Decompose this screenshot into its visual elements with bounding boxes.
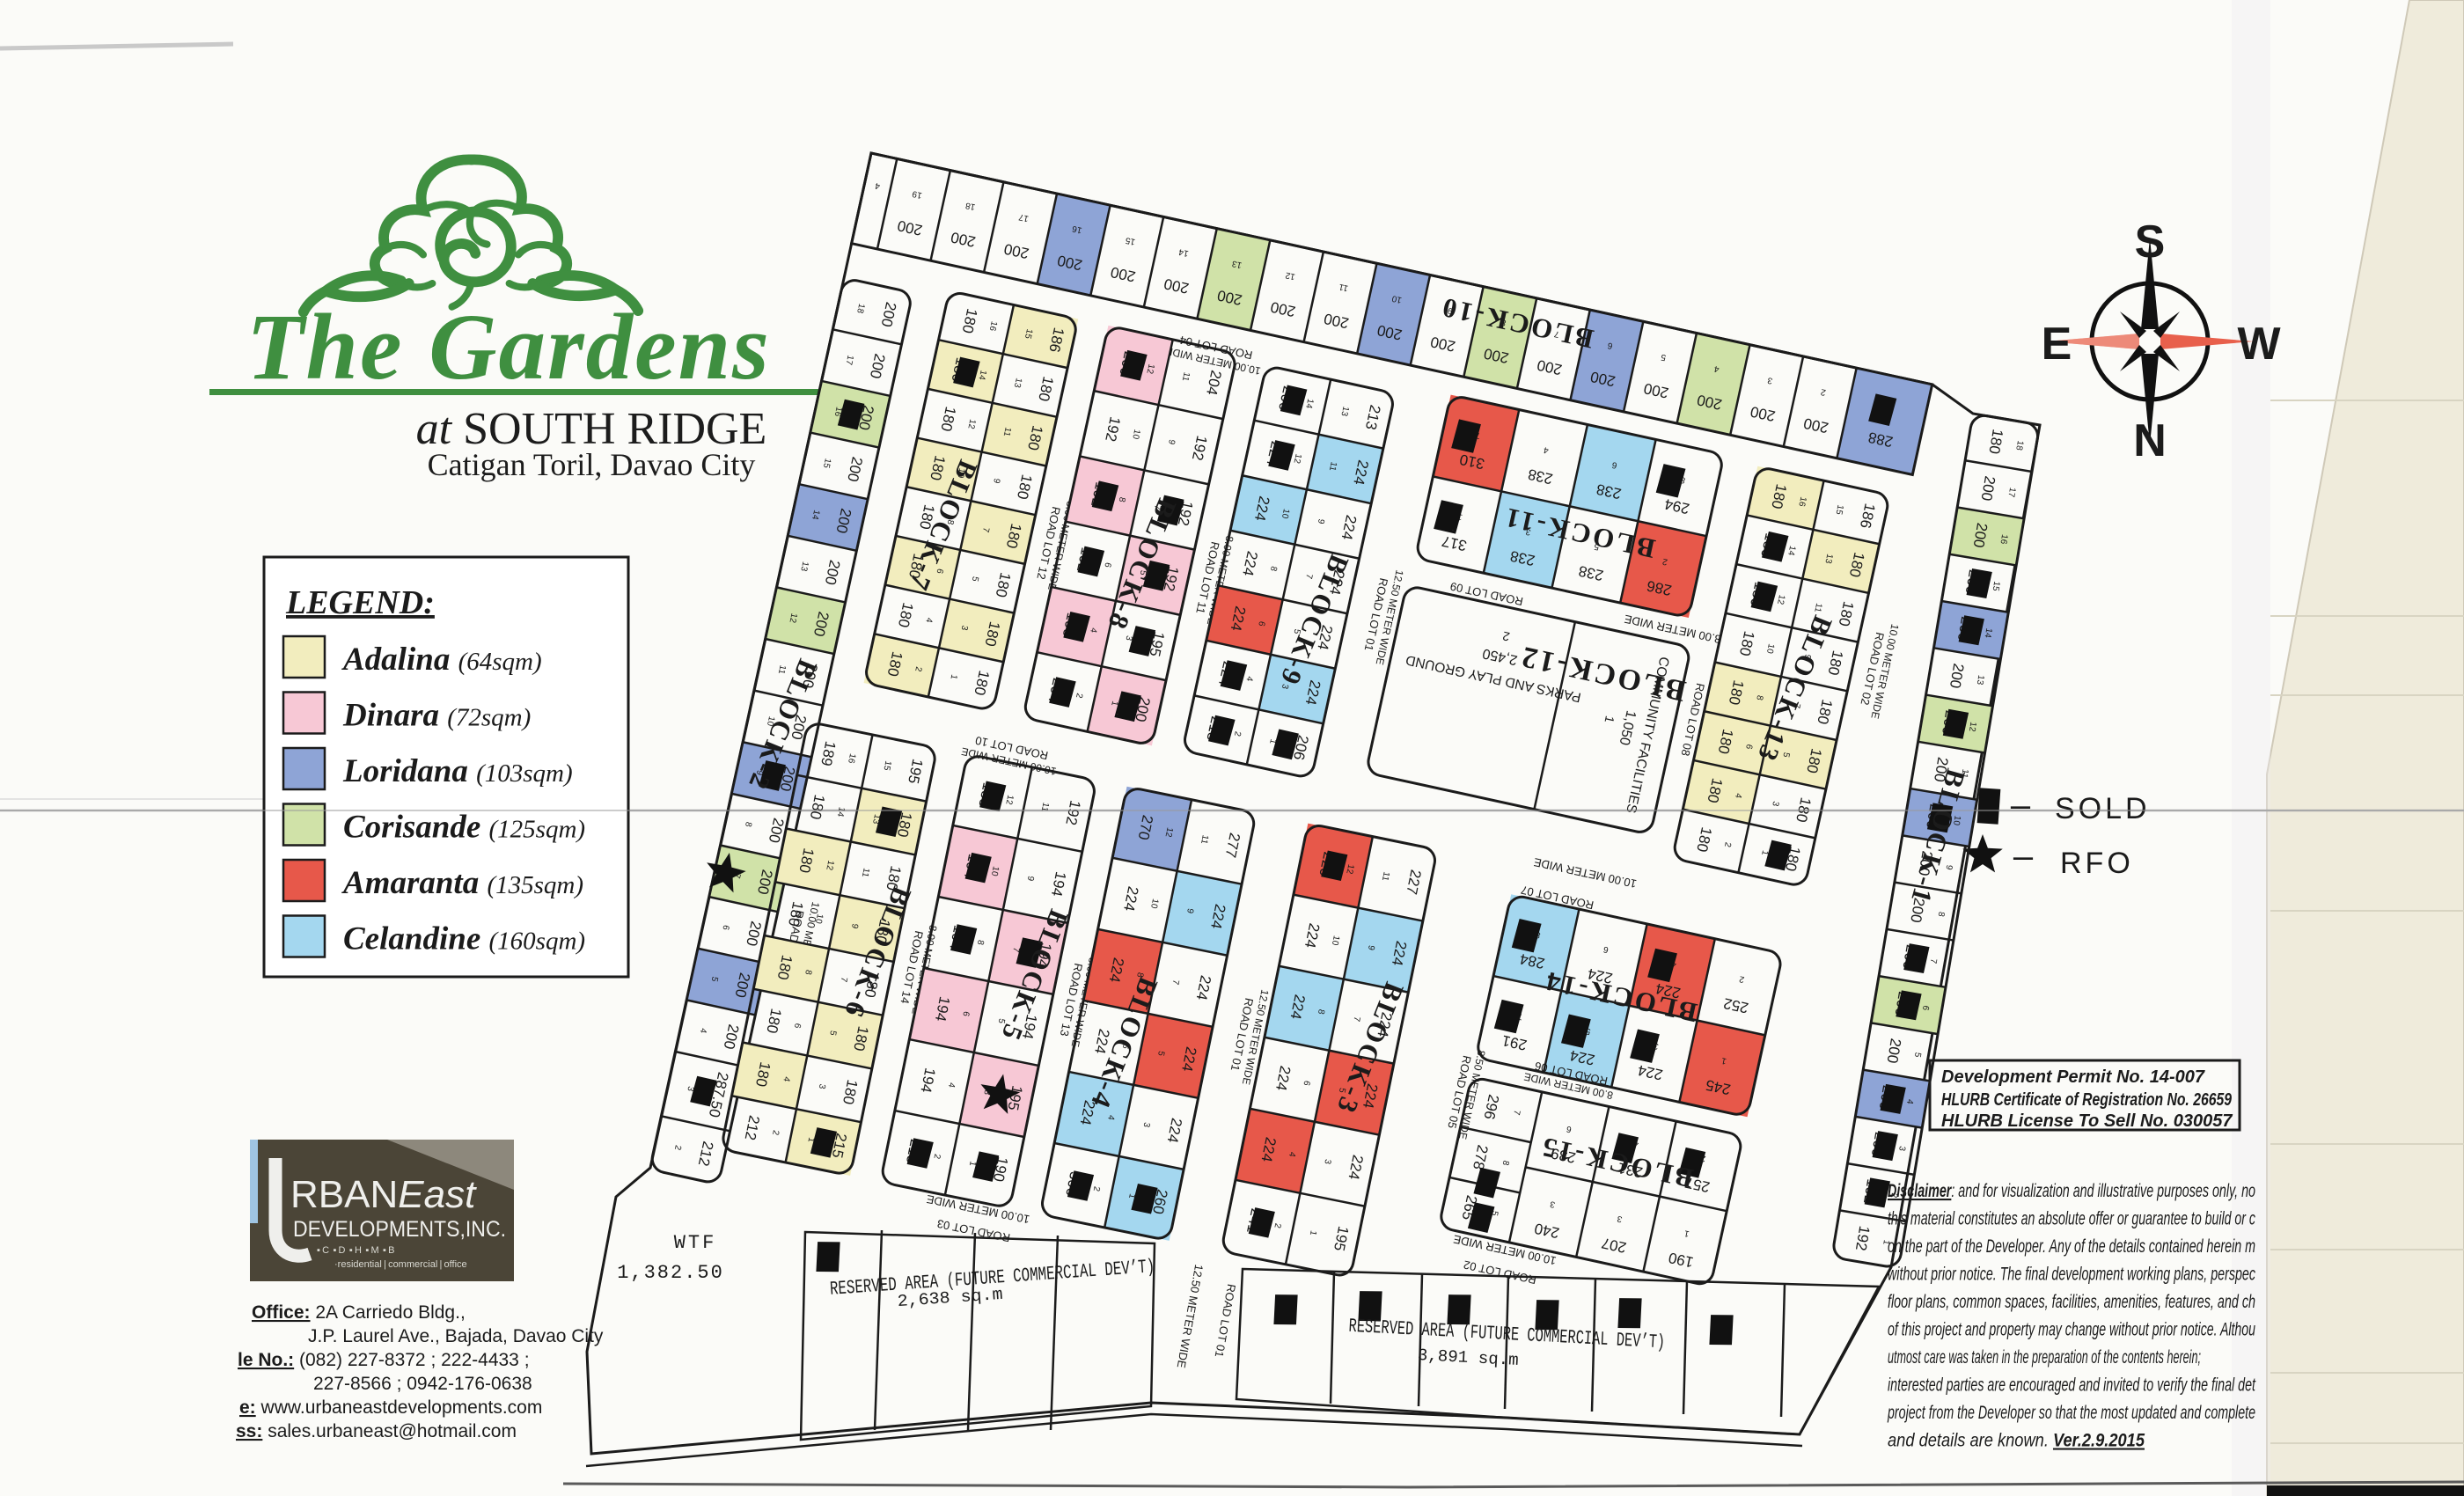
svg-text:e: www.urbaneastdevelopments.c: e: www.urbaneastdevelopments.com: [239, 1397, 542, 1418]
svg-text:227-8566 ; 0942-176-0638: 227-8566 ; 0942-176-0638: [313, 1374, 532, 1394]
svg-text:without prior notice. The fina: without prior notice. The final developm…: [1888, 1265, 2255, 1285]
svg-text:HLURB Certificate of Registrat: HLURB Certificate of Registration No. 26…: [1941, 1090, 2233, 1110]
svg-text:ss: sales.urbaneast@hotmail.co: ss: sales.urbaneast@hotmail.com: [236, 1421, 517, 1441]
svg-text:Celandine (160sqm): Celandine (160sqm): [343, 921, 585, 957]
svg-text:and details are known. Ver.2.9: and details are known. Ver.2.9.2015: [1888, 1431, 2145, 1451]
svg-text:Office: 2A Carriedo Bldg.,: Office: 2A Carriedo Bldg.,: [252, 1302, 466, 1323]
svg-text:16: 16: [1998, 533, 2009, 545]
svg-text:E: E: [2042, 319, 2072, 370]
svg-text:Dinara (72sqm): Dinara (72sqm): [342, 698, 531, 734]
svg-text:RFO: RFO: [2060, 847, 2134, 880]
svg-text:DEVELOPMENTS,INC.: DEVELOPMENTS,INC.: [293, 1217, 506, 1242]
svg-text:LEGEND:: LEGEND:: [285, 584, 435, 621]
svg-text:this material constitutes an a: this material constitutes an absolute of…: [1888, 1209, 2255, 1229]
svg-text:Disclaimer: and for visualizat: Disclaimer: and for visualization and il…: [1888, 1181, 2255, 1201]
svg-text:15: 15: [1990, 581, 2001, 592]
svg-text:The Gardens: The Gardens: [246, 296, 771, 400]
svg-text:14: 14: [1983, 627, 1994, 639]
svg-text:18: 18: [2013, 440, 2025, 451]
svg-text:1,382.50: 1,382.50: [617, 1262, 724, 1284]
svg-text:–: –: [2013, 837, 2034, 876]
svg-text:Loridana (103sqm): Loridana (103sqm): [342, 753, 573, 789]
svg-text:S: S: [2135, 216, 2166, 268]
svg-text:N: N: [2133, 415, 2167, 466]
svg-text:le No.: (082) 227-8372 ; 222-4: le No.: (082) 227-8372 ; 222-4433 ;: [238, 1350, 530, 1370]
svg-text:Corisande (125sqm): Corisande (125sqm): [343, 810, 585, 846]
svg-text:Development Permit No. 14-007: Development Permit No. 14-007: [1941, 1067, 2205, 1087]
svg-text:17: 17: [2006, 487, 2017, 498]
svg-text:W: W: [2237, 319, 2281, 370]
svg-text:RBANEast: RBANEast: [290, 1173, 477, 1216]
svg-text:–: –: [2011, 786, 2031, 825]
svg-text:WTF: WTF: [674, 1232, 717, 1254]
svg-text:utmost care was taken in the p: utmost care was taken in the preparation…: [1888, 1347, 2201, 1368]
svg-text:Adalina (64sqm): Adalina (64sqm): [341, 642, 542, 678]
svg-text:SOLD: SOLD: [2055, 792, 2151, 825]
svg-text:12: 12: [1967, 721, 1978, 732]
svg-text:interested parties are encoura: interested parties are encouraged and in…: [1888, 1375, 2256, 1396]
svg-text:Catigan Toril, Davao City: Catigan Toril, Davao City: [428, 447, 756, 482]
svg-text:floor plans, common spaces, fa: floor plans, common spaces, facilities, …: [1888, 1292, 2255, 1312]
svg-text:of this project and property m: of this project and property may change …: [1888, 1320, 2255, 1340]
svg-text:·residential | commercial | of: ·residential | commercial | office: [334, 1259, 467, 1270]
svg-text:13: 13: [1975, 674, 1986, 686]
svg-text:▪ C ▪ D ▪ H ▪ M ▪ B: ▪ C ▪ D ▪ H ▪ M ▪ B: [317, 1245, 394, 1256]
svg-text:on the part of the Developer.: on the part of the Developer. Any of the…: [1888, 1236, 2255, 1257]
svg-text:Amaranta (135sqm): Amaranta (135sqm): [341, 865, 583, 901]
svg-text:HLURB License To Sell No. 0300: HLURB License To Sell No. 030057: [1941, 1111, 2233, 1131]
svg-text:J.P. Laurel Ave., Bajada, Dava: J.P. Laurel Ave., Bajada, Davao City: [308, 1326, 604, 1346]
svg-text:project from the Developer so: project from the Developer so that the m…: [1887, 1403, 2255, 1423]
